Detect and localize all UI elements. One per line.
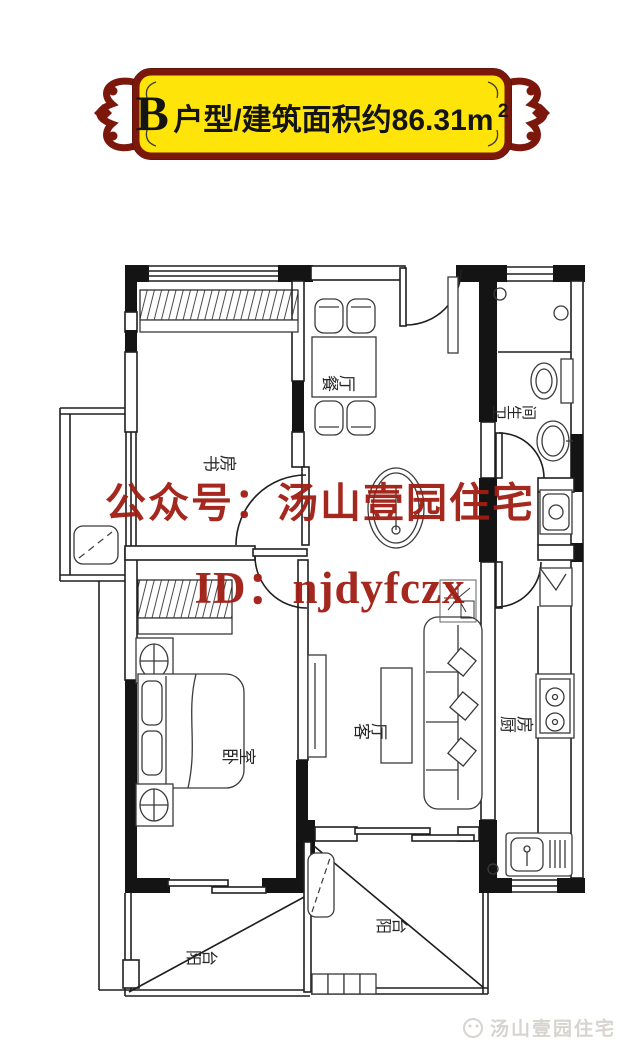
study-furniture	[140, 290, 298, 332]
wall-study-east-black	[292, 381, 304, 432]
bathroom-top-window	[507, 267, 555, 281]
wall-bath-west-black	[479, 265, 497, 422]
coffee-table	[381, 668, 412, 763]
balcony-center-diagonal	[314, 846, 484, 988]
wall-kitchen-bottom-right	[557, 878, 585, 893]
entry-cabinet	[448, 277, 458, 353]
sofa	[424, 617, 482, 809]
kitchen-sink	[506, 833, 572, 876]
room-label-dining: 餐厅	[320, 375, 356, 392]
study-top-window	[147, 266, 278, 281]
wall-dining-top	[311, 266, 405, 280]
footer-watermark-text: 汤山壹园住宅	[490, 1017, 616, 1040]
wall-bedroom-bottom-right	[262, 878, 310, 893]
wall-left-black-top	[125, 265, 137, 312]
banner-area-superscript: 2	[498, 101, 509, 122]
wall-left-thin-2	[125, 352, 137, 432]
living-balcony-sliding-door	[355, 828, 474, 841]
water-heater-unit	[308, 853, 334, 917]
title-banner: B 户型/建筑面积约86.31m 2	[94, 69, 550, 159]
wall-living-bottom-1	[315, 827, 357, 841]
banner-title-text: 户型/建筑面积约86.31m	[173, 103, 493, 137]
banner-unit-letter: B	[136, 85, 169, 141]
watermark-line2: ID：njdyfczx	[195, 563, 466, 613]
bed	[138, 674, 244, 788]
footer-logo-icon	[464, 1019, 482, 1037]
wall-left-thin-3	[125, 548, 137, 680]
dining-furniture	[312, 299, 376, 435]
floorplan-page: B 户型/建筑面积约86.31m 2	[0, 0, 640, 1055]
bedroom-furniture	[136, 580, 244, 826]
stove	[536, 674, 574, 738]
floorplan-canvas: B 户型/建筑面积约86.31m 2	[0, 0, 640, 1055]
wall-bath-west-thin	[481, 422, 495, 478]
room-label-balcony-center: 阳台	[374, 918, 408, 934]
balcony-left-diagonal	[129, 896, 306, 992]
wall-top-right-corner	[553, 265, 585, 282]
wall-bedroom-bottom-left	[125, 878, 170, 893]
wall-kitchen-bottom-left	[479, 878, 512, 893]
wall-left-black-2	[125, 330, 137, 352]
room-label-study: 书房	[201, 455, 237, 472]
living-furniture	[308, 617, 482, 809]
shower-head	[554, 306, 568, 320]
room-label-bathroom: 卫生间	[490, 405, 537, 420]
wall-top-pillar	[278, 265, 313, 282]
room-label-balcony-left: 阳台	[184, 950, 218, 966]
footer-watermark: 汤山壹园住宅	[464, 1017, 616, 1040]
bedroom-balcony-sliding-door	[168, 880, 266, 893]
balcony-steps	[312, 974, 376, 994]
wall-bedroom-west	[125, 680, 137, 893]
wall-left-thin-1	[125, 312, 137, 332]
wall-study-east-thin-2	[292, 432, 304, 467]
bathroom-fixtures	[494, 288, 573, 461]
laundry-niche	[540, 490, 572, 534]
bedroom-wardrobe-shelf	[138, 618, 232, 634]
toilet	[531, 359, 573, 403]
study-wardrobe-shelf	[140, 320, 298, 332]
wall-kitchen-west-thin	[481, 562, 495, 820]
nightstand-bottom	[136, 784, 173, 826]
ac-outdoor-unit	[74, 526, 118, 564]
wall-study-bedroom	[125, 546, 255, 560]
fridge	[540, 568, 572, 606]
bathroom-sink	[537, 421, 573, 461]
room-label-kitchen: 厨房	[498, 716, 534, 733]
wall-kitchen-top	[538, 545, 574, 560]
room-label-bedroom: 卧室	[220, 748, 256, 765]
study-wardrobe-hatch	[140, 290, 298, 320]
watermark-line1: 公众号：汤山壹园住宅	[105, 480, 535, 526]
room-label-living: 客厅	[352, 723, 388, 740]
kitchen-bottom-window	[512, 880, 557, 892]
tv-cabinet	[308, 655, 326, 757]
kitchen-door	[496, 562, 541, 608]
